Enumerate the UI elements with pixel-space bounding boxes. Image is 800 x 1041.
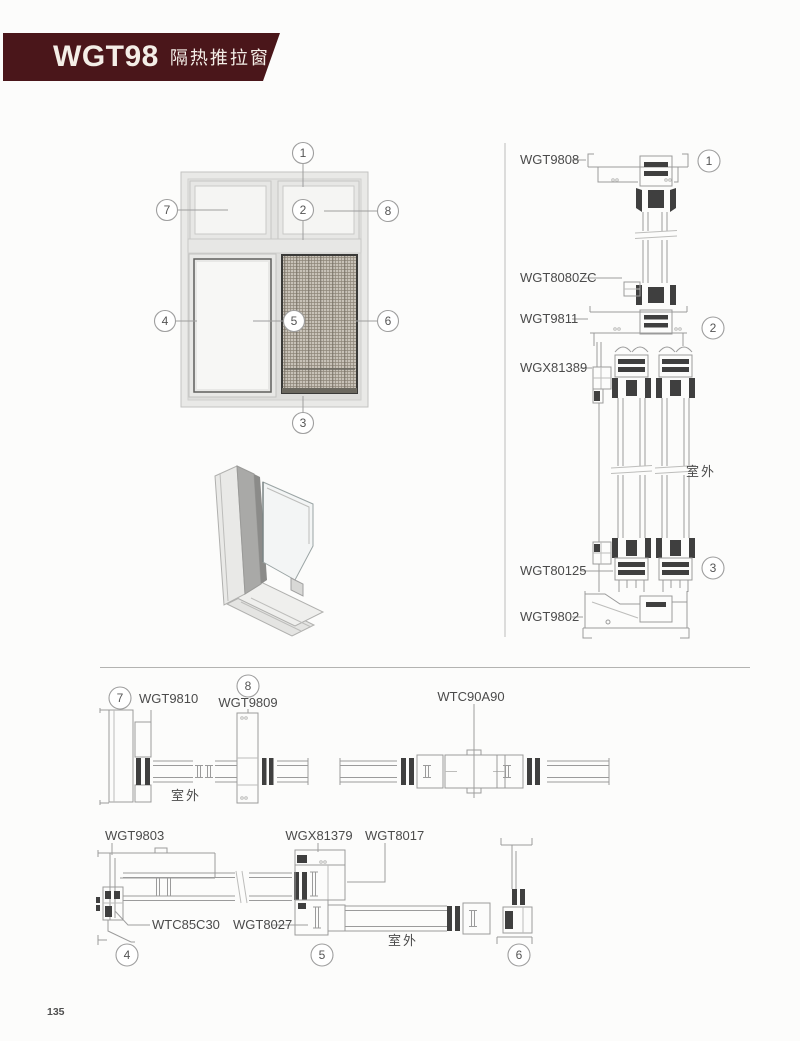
plan-callout-6: 6 [508,944,530,966]
section-divider-line [100,667,750,668]
callout-4: 4 [155,311,176,332]
catalog-page: { "header": { "model": "WGT98", "product… [0,0,800,1041]
title-banner: WGT98 隔热推拉窗 [3,33,280,81]
sliding-sash-sections [611,347,696,592]
vertical-section-drawing: WGT9808 WGT8080ZC WGT9811 WGX81389 WGT80… [480,130,795,645]
left-jamb-drawing [100,708,151,805]
glass-band-row1 [153,758,609,785]
svg-text:5: 5 [319,948,326,962]
svg-text:7: 7 [117,691,124,705]
center-mullion-drawing [237,713,274,803]
lower-glass-band-row2 [345,903,490,934]
plan-section-bottom-drawing: WGT9803 WGX81379 WGT8017 WTC85C30 WGT802… [95,825,695,973]
plan-callout-5: 5 [311,944,333,966]
svg-text:4: 4 [162,314,169,328]
fixed-glass-drawing [624,212,677,305]
svg-text:6: 6 [385,314,392,328]
svg-text:7: 7 [164,203,171,217]
section-callout-3: 3 [702,557,724,579]
right-jamb-drawing [497,838,532,944]
connector-assembly-wtc90a90 [401,750,540,793]
svg-text:4: 4 [124,948,131,962]
screen-bottom-rail [282,388,357,393]
svg-text:8: 8 [385,204,392,218]
part-label-wgt9810: WGT9810 [139,691,198,706]
head-profile-drawing [588,154,688,212]
svg-text:3: 3 [710,561,717,575]
section-callout-1: 1 [698,150,720,172]
part-label-wtc85c30: WTC85C30 [152,917,220,932]
profile-3d-shapes [215,466,323,636]
section-callout-2: 2 [702,317,724,339]
plan-callout-4: 4 [116,944,138,966]
part-label-wgx81379: WGX81379 [285,828,352,843]
part-label-wgt8017: WGT8017 [365,828,424,843]
product-name: 隔热推拉窗 [170,44,270,70]
plan-top-leaders [151,704,474,798]
product-model: WGT98 [53,40,159,74]
outdoor-label-row2: 室外 [388,933,418,948]
svg-text:1: 1 [300,146,307,160]
part-label-wgt8080zc: WGT8080ZC [520,270,597,285]
callout-5: 5 [284,311,305,332]
callout-2: 2 [293,200,314,221]
part-label-wgt80125: WGT80125 [520,563,586,578]
callout-8: 8 [378,201,399,222]
svg-text:6: 6 [516,948,523,962]
part-label-wgx81389: WGX81389 [520,360,587,375]
svg-text:8: 8 [245,679,252,693]
plan-section-top-drawing: 7 WGT9810 8 WGT9809 WTC90A90 室外 [95,672,755,822]
part-label-wgt9809: WGT9809 [218,695,277,710]
sliding-sash-panel [189,254,276,397]
outdoor-label-row1: 室外 [171,788,201,803]
part-label-wtc90a90: WTC90A90 [437,689,504,704]
outdoor-label: 室外 [686,464,716,479]
part-label-wgt9811: WGT9811 [520,311,578,326]
callout-1: 1 [293,143,314,164]
page-number: 135 [47,1006,65,1018]
screen-track-drawing [593,342,611,592]
svg-text:1: 1 [706,154,713,168]
svg-text:2: 2 [710,321,717,335]
svg-text:3: 3 [300,416,307,430]
callout-7: 7 [157,200,178,221]
transom-profile-drawing [590,306,687,346]
part-label-wgt9803: WGT9803 [105,828,164,843]
profile-3d-render [197,452,347,634]
window-elevation-diagram: 1 2 3 4 5 6 7 8 [140,140,400,436]
part-label-wgt8027: WGT8027 [233,917,292,932]
plan-callout-8: 8 [237,675,259,697]
svg-text:5: 5 [291,314,298,328]
part-label-wgt9808: WGT9808 [520,152,579,167]
callout-3: 3 [293,413,314,434]
part-label-wgt9802: WGT9802 [520,609,579,624]
sill-profile-drawing [583,591,689,638]
callout-6: 6 [378,311,399,332]
svg-text:2: 2 [300,203,307,217]
plan-callout-7: 7 [109,687,131,709]
